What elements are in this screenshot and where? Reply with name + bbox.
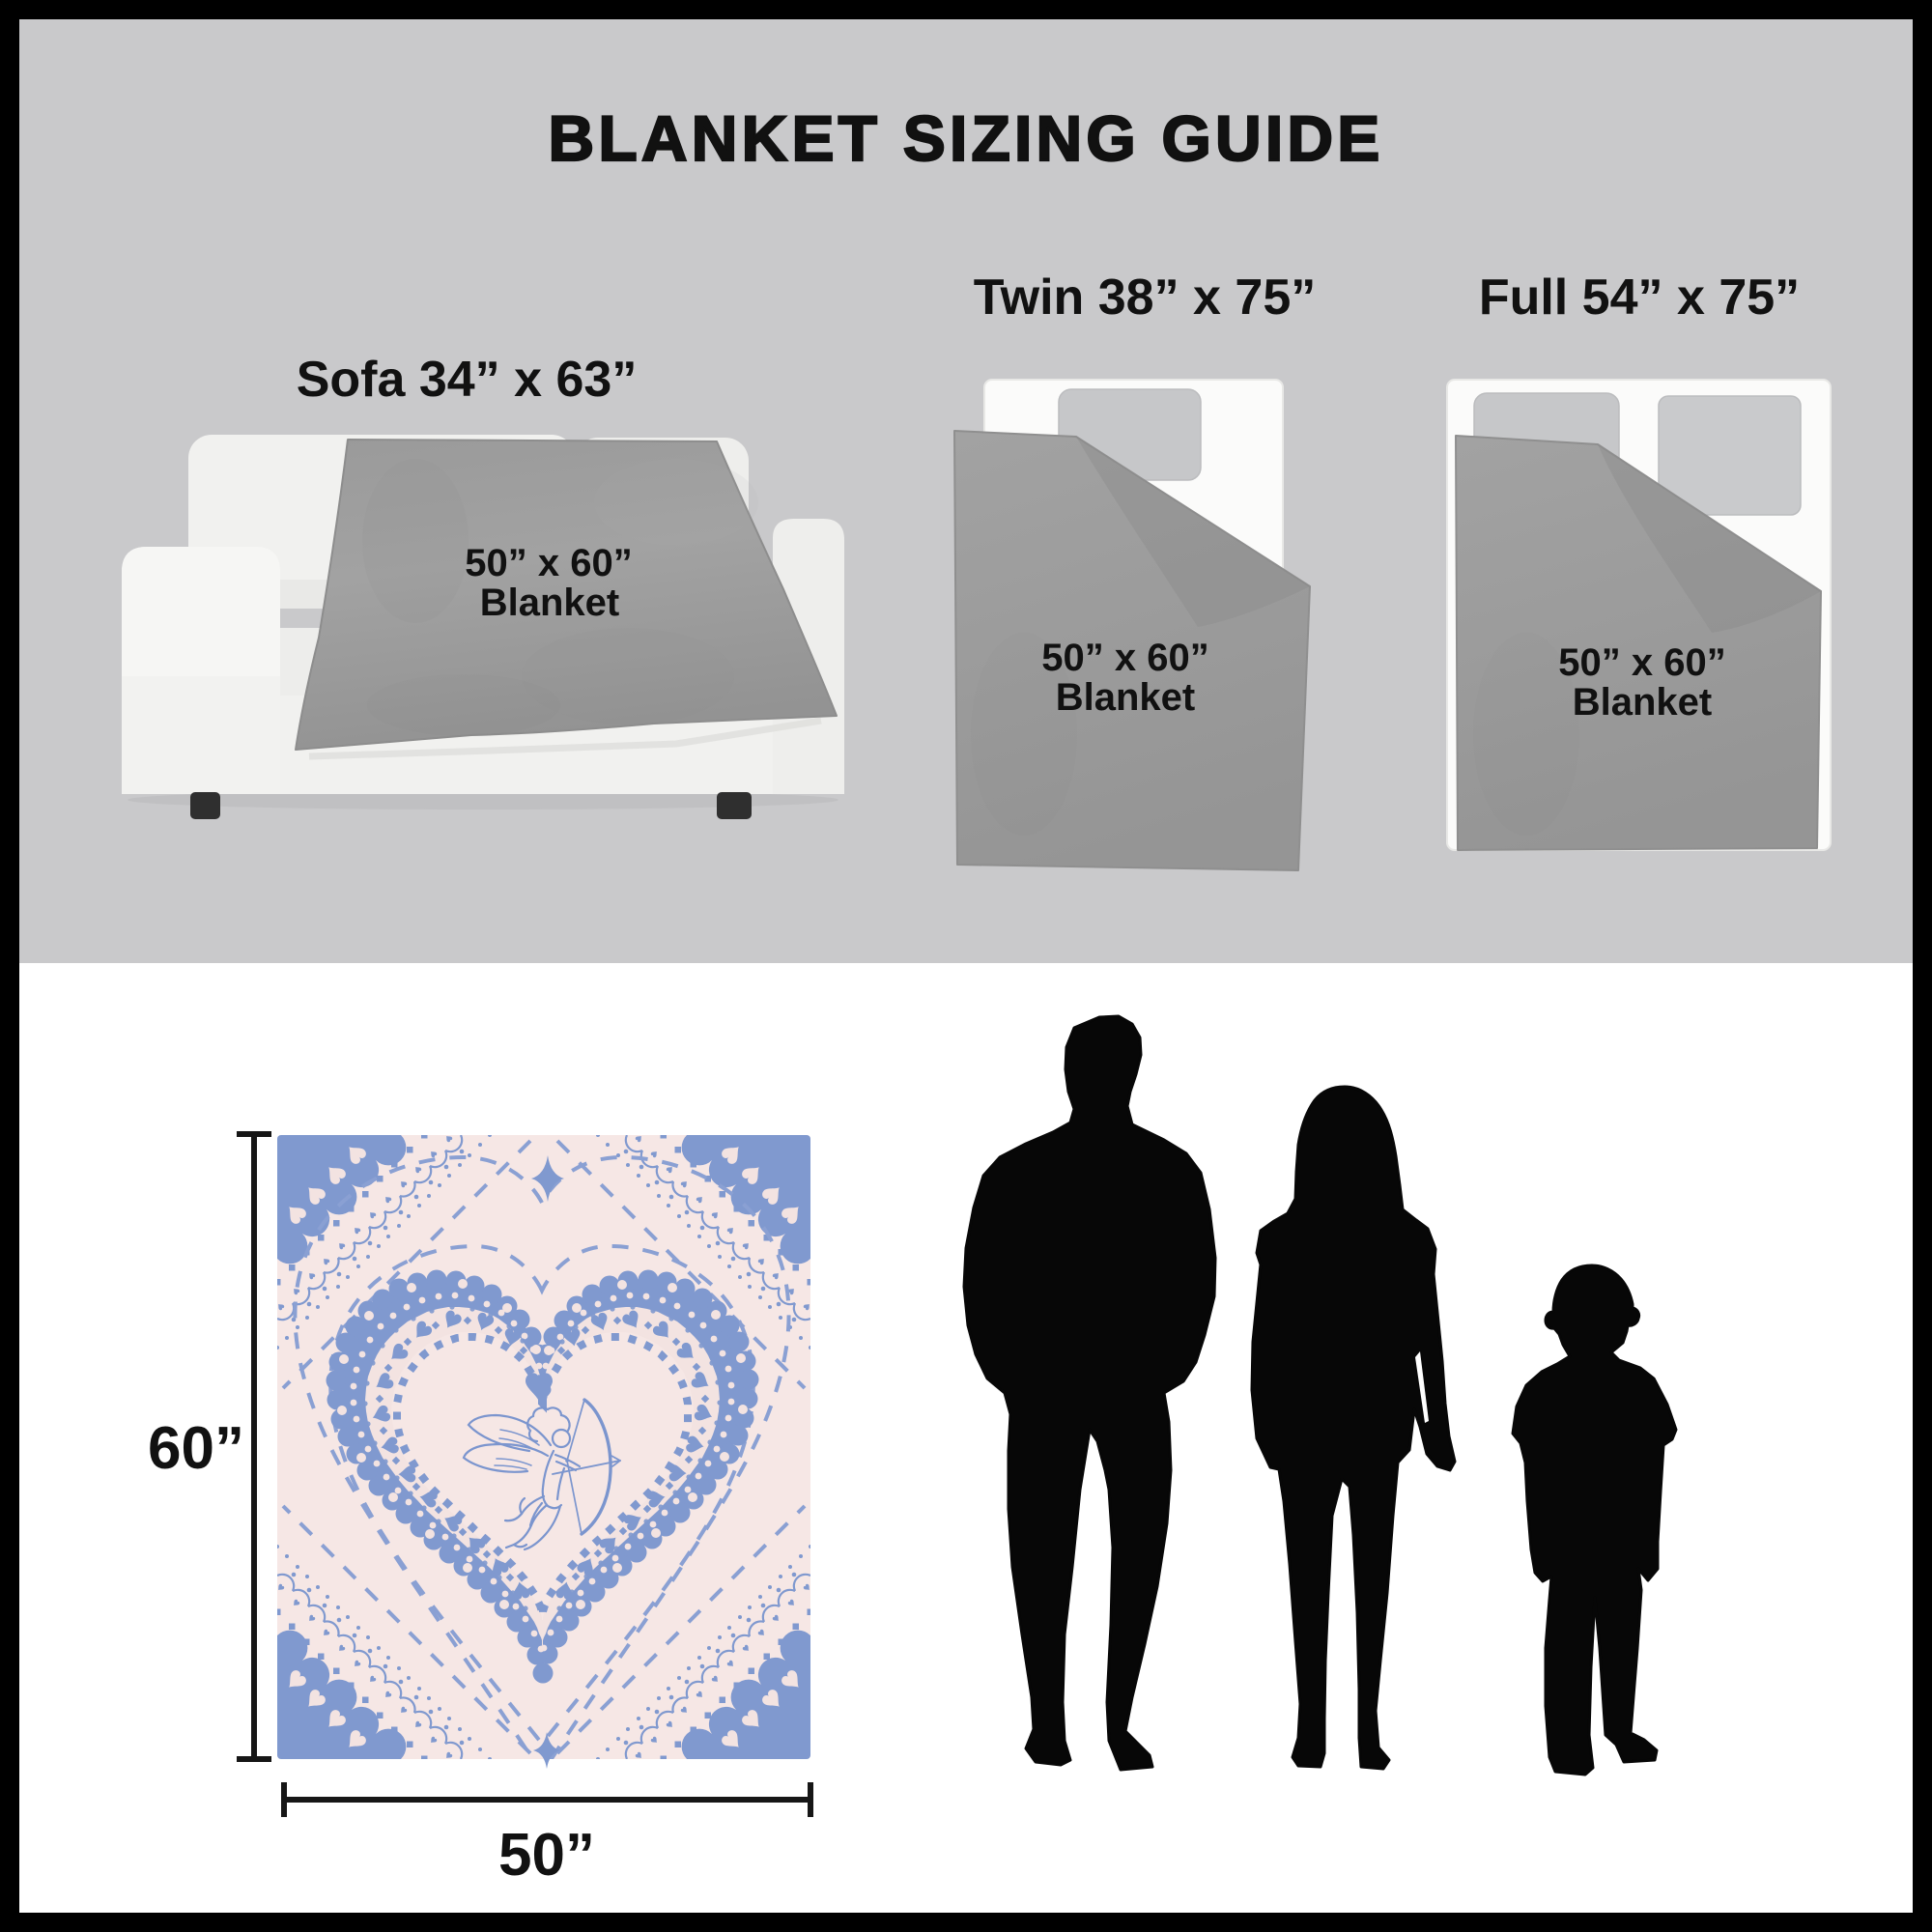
svg-text:50” x 60”: 50” x 60” (465, 542, 632, 584)
svg-text:50”: 50” (498, 1822, 595, 1889)
svg-text:Twin 38” x 75”: Twin 38” x 75” (974, 270, 1317, 326)
svg-text:50” x 60”: 50” x 60” (1041, 637, 1208, 679)
svg-text:Full 54” x 75”: Full 54” x 75” (1479, 270, 1800, 326)
svg-text:Sofa 34” x 63”: Sofa 34” x 63” (297, 352, 638, 408)
svg-text:Blanket: Blanket (1056, 676, 1196, 719)
svg-text:BLANKET SIZING GUIDE: BLANKET SIZING GUIDE (548, 102, 1383, 174)
svg-text:Blanket: Blanket (1573, 681, 1713, 724)
svg-text:Blanket: Blanket (480, 582, 620, 624)
svg-text:60”: 60” (148, 1415, 244, 1482)
svg-text:50” x 60”: 50” x 60” (1558, 641, 1725, 684)
